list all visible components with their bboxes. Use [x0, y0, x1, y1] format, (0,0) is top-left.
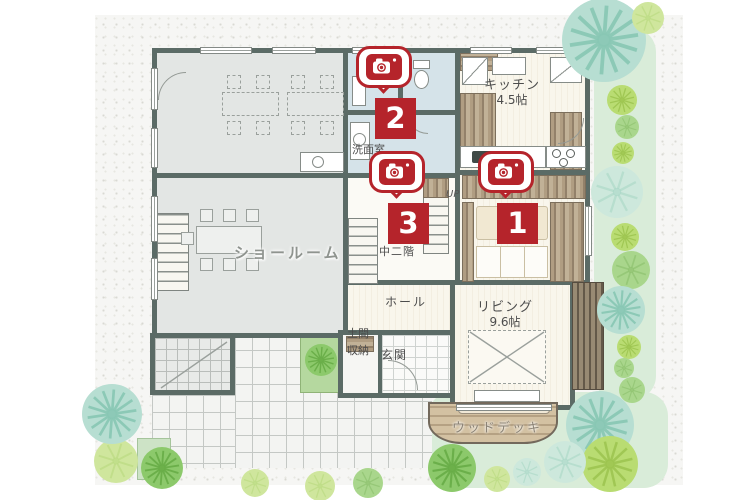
- window: [151, 258, 158, 300]
- chair: [256, 121, 270, 135]
- kitchen-cabinet-corner: [550, 57, 582, 83]
- photo-marker-3[interactable]: 3: [369, 151, 427, 247]
- dining-wood-right: [550, 202, 584, 282]
- meeting-table: [222, 92, 279, 116]
- meeting-table: [287, 92, 344, 116]
- living-table: [468, 330, 546, 384]
- window: [200, 47, 252, 54]
- chair: [200, 209, 213, 222]
- burner-icon: [566, 149, 575, 158]
- window: [151, 196, 158, 242]
- chair: [320, 75, 334, 89]
- room-porch: [150, 333, 235, 395]
- photo-marker-number: 2: [375, 98, 416, 139]
- window: [151, 128, 158, 168]
- doma-storage-label-line1: 土間: [347, 325, 369, 341]
- hall-label: ホール: [385, 293, 427, 310]
- toilet-bowl: [414, 70, 429, 89]
- chair: [227, 121, 241, 135]
- living-size-label: 9.6帖: [468, 313, 542, 330]
- camera-icon: [369, 151, 425, 193]
- window: [470, 47, 512, 54]
- stairs-up-label: UP: [446, 189, 459, 200]
- chair: [200, 258, 213, 271]
- showroom-label: ショールーム: [234, 242, 342, 263]
- living-bench: [474, 390, 540, 402]
- window: [585, 206, 592, 256]
- dining-wood-left: [462, 202, 474, 282]
- kitchen-cabinet: [492, 57, 526, 75]
- dining-bench-lower: [476, 246, 548, 278]
- chair: [320, 121, 334, 135]
- chair: [246, 209, 259, 222]
- chair: [291, 75, 305, 89]
- wood-deck-label: ウッドデッキ: [452, 417, 542, 436]
- kitchen-size-label: 4.5帖: [478, 91, 546, 108]
- chair: [223, 209, 236, 222]
- wall-doma: [378, 335, 382, 393]
- chair: [256, 75, 270, 89]
- meeting-sink-icon: [312, 156, 324, 168]
- wood-fence: [572, 282, 604, 390]
- chair: [291, 121, 305, 135]
- entrance-label: 玄関: [381, 346, 407, 363]
- window: [456, 404, 552, 411]
- garden-planter: [137, 438, 171, 480]
- stairs-showroom: [157, 213, 189, 291]
- chair: [227, 75, 241, 89]
- doma-storage-label-line2: 収納: [347, 342, 369, 358]
- window: [151, 68, 158, 110]
- camera-icon: [478, 151, 534, 193]
- camera-icon: [356, 46, 412, 88]
- burner-icon: [559, 158, 568, 167]
- window: [272, 47, 316, 54]
- photo-marker-number: 1: [497, 203, 538, 244]
- burner-icon: [552, 149, 561, 158]
- photo-marker-1[interactable]: 1: [478, 151, 536, 247]
- photo-marker-2[interactable]: 2: [356, 46, 414, 142]
- window: [536, 47, 574, 54]
- toilet-tank: [413, 60, 430, 69]
- floor-plan: ショールーム キッチン 4.5帖 洗面室 中二階 UP ホール 土間 収納 玄関…: [0, 0, 750, 500]
- photo-marker-number: 3: [388, 203, 429, 244]
- chair: [181, 232, 194, 245]
